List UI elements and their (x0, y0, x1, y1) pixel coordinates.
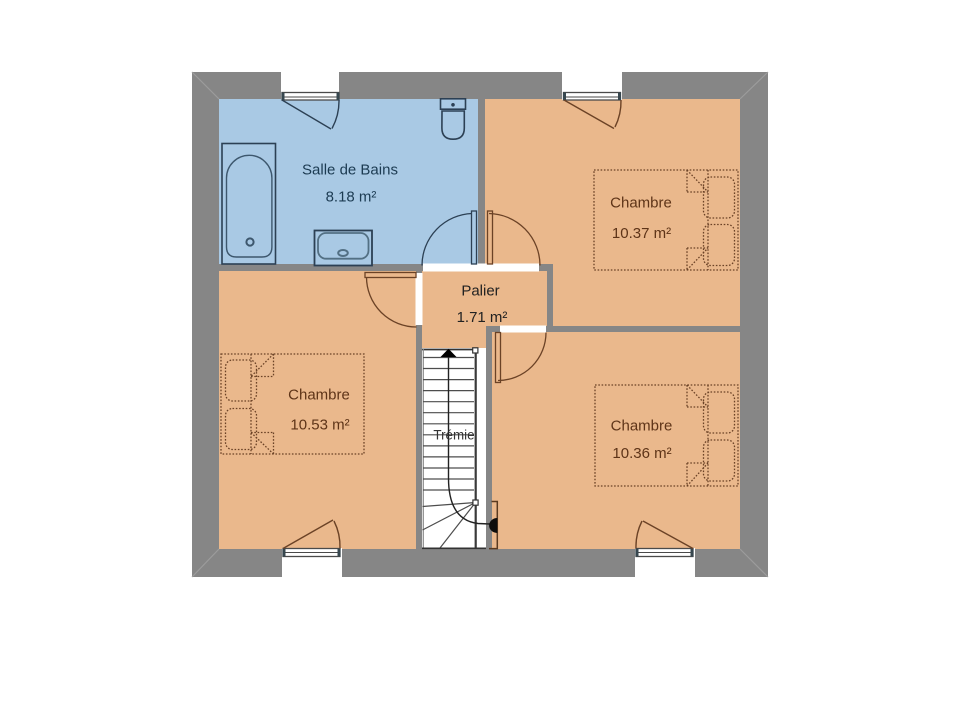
svg-text:8.18 m²: 8.18 m² (326, 189, 377, 206)
svg-text:Chambre: Chambre (288, 387, 350, 404)
svg-text:1.71 m²: 1.71 m² (457, 309, 508, 326)
svg-text:Salle de Bains: Salle de Bains (302, 162, 398, 179)
svg-text:Palier: Palier (461, 283, 499, 300)
svg-text:10.53 m²: 10.53 m² (290, 417, 349, 434)
svg-text:Chambre: Chambre (610, 195, 672, 212)
svg-text:Chambre: Chambre (611, 418, 673, 435)
svg-text:10.36 m²: 10.36 m² (612, 445, 671, 462)
svg-text:10.37 m²: 10.37 m² (612, 225, 671, 242)
svg-text:Trémie: Trémie (433, 428, 474, 443)
